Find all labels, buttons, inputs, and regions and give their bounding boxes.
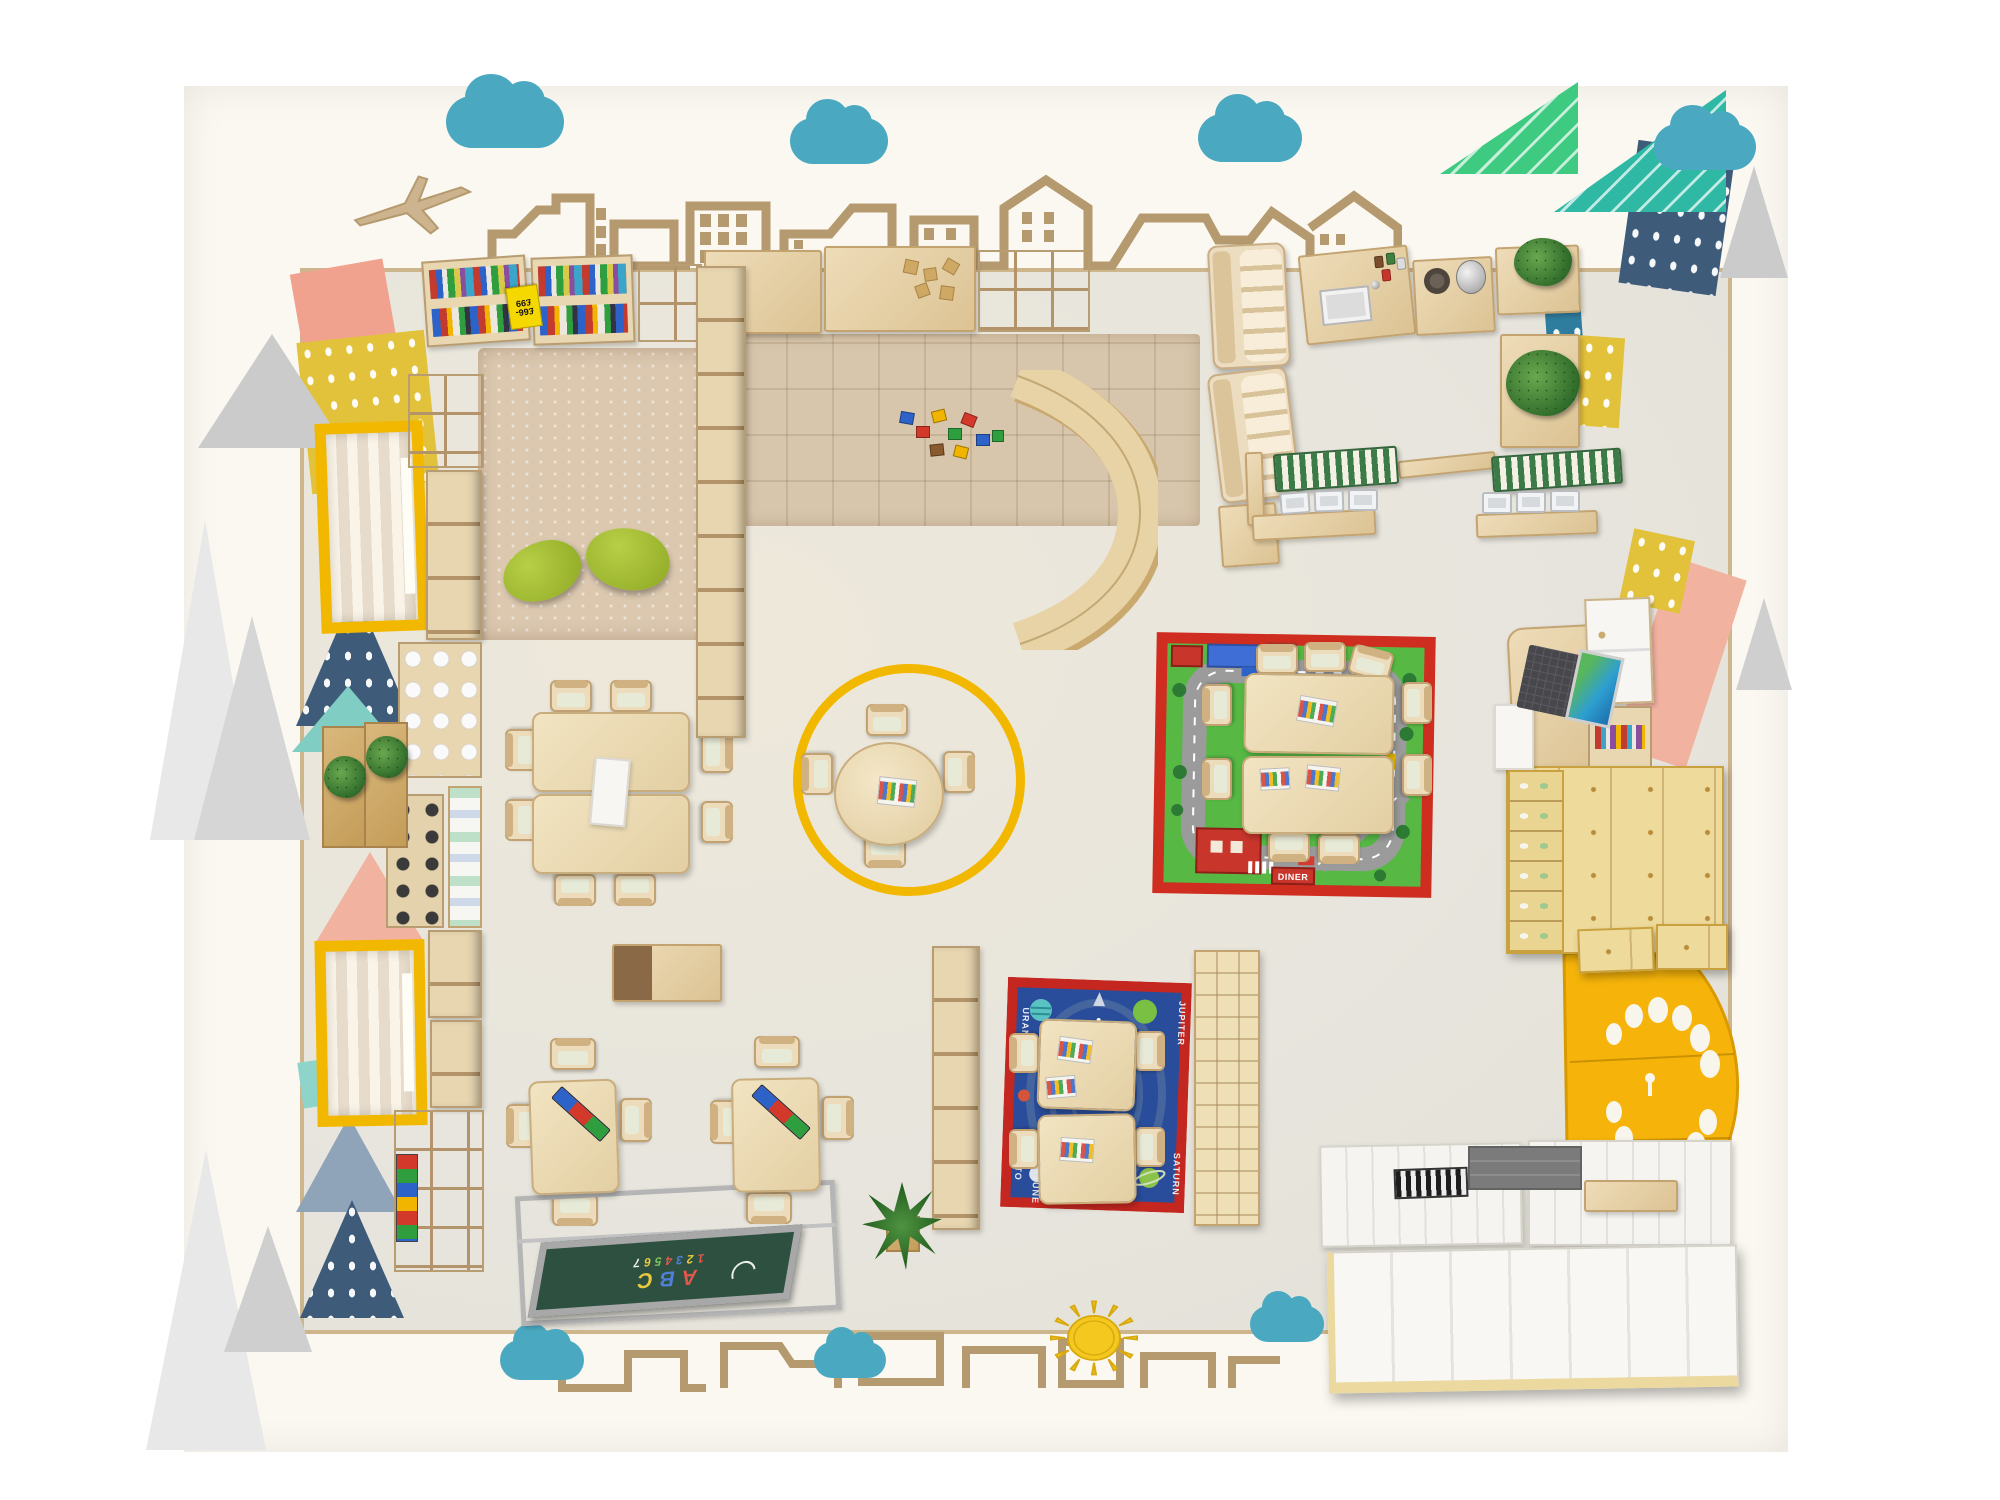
chair	[1402, 682, 1432, 724]
chair	[1402, 754, 1432, 796]
cloud-decal	[814, 1342, 886, 1378]
chalkboard-writing: ABC 1234567	[538, 1234, 791, 1308]
wall-cube-row	[426, 470, 482, 640]
chair	[614, 874, 656, 906]
chair	[1202, 758, 1232, 800]
kitchen-sink-props	[1308, 251, 1414, 343]
book-display	[530, 254, 635, 346]
chair	[1009, 1129, 1039, 1169]
cloud-decal	[1250, 1306, 1324, 1342]
chair	[1202, 684, 1232, 726]
wall-shelf-toys	[978, 250, 1090, 332]
stall-tray	[1516, 491, 1546, 513]
stall-tray	[1348, 489, 1378, 511]
chair	[554, 874, 596, 906]
wall-cube-row	[430, 1020, 482, 1108]
chalk-letter: A	[673, 1264, 699, 1289]
woven-mat	[1393, 1167, 1468, 1200]
jar	[1374, 255, 1384, 268]
counting-toy	[1056, 1036, 1093, 1064]
toy-block	[948, 428, 962, 440]
cloud-decal	[790, 118, 888, 164]
wall-cube-row	[428, 930, 482, 1018]
wood-block	[903, 259, 920, 276]
chair	[1009, 1033, 1039, 1073]
chair	[822, 1096, 854, 1140]
wall-toy-strip	[396, 1154, 418, 1242]
cloud-decal	[1654, 124, 1756, 170]
skyline-decal-bottom	[556, 1330, 1316, 1408]
toy-block	[899, 411, 915, 425]
divider-shelf	[1194, 950, 1260, 1226]
craft-console	[612, 944, 722, 1002]
chair	[1268, 832, 1310, 862]
chair	[1318, 834, 1360, 864]
counting-toy	[1059, 1137, 1095, 1163]
toy-block	[916, 426, 930, 438]
paper-sheet	[589, 757, 631, 828]
chair	[620, 1098, 652, 1142]
counting-toy	[1259, 767, 1290, 791]
sink-basin	[1319, 285, 1372, 326]
cloud-decal	[500, 1340, 584, 1380]
chair	[701, 801, 733, 843]
market-table	[1476, 510, 1599, 538]
pine-box	[1656, 924, 1728, 970]
cloud-decal	[446, 96, 564, 148]
counting-toy	[1305, 764, 1341, 791]
planet-label: JUPITER	[1176, 1001, 1188, 1046]
train-table	[731, 1077, 821, 1193]
mat-stack	[1468, 1146, 1582, 1190]
divider-shelf	[932, 946, 980, 1230]
pine-cubbies	[1508, 770, 1564, 952]
curved-bench	[982, 370, 1158, 650]
chair	[1256, 644, 1298, 674]
supply-shelf	[448, 786, 482, 928]
shrub	[324, 756, 366, 798]
plant	[1506, 350, 1580, 416]
planet-label: SATURN	[1171, 1153, 1182, 1196]
window	[314, 939, 427, 1127]
book-price-tag: £66-£99	[505, 284, 543, 330]
chair	[1304, 642, 1346, 672]
plant	[1514, 238, 1572, 286]
chair	[610, 680, 652, 712]
corner-cube-shelf	[638, 264, 702, 342]
book-price-tag-label: £66-£99	[508, 296, 540, 319]
wall-cube-box	[408, 374, 484, 468]
chair	[550, 680, 592, 712]
classroom-floor-plan: DINER URANUS JUPITER PLUTO NEPTUNE SATUR…	[0, 0, 2000, 1500]
chair	[1135, 1031, 1165, 1071]
toy-block	[992, 430, 1004, 442]
sun-decal	[1044, 1298, 1144, 1378]
paper-roll-shelf	[398, 642, 482, 778]
jar	[1381, 269, 1391, 282]
toy-block	[929, 443, 944, 456]
mat-tan	[1584, 1180, 1678, 1212]
chair	[754, 1036, 800, 1068]
shrub	[366, 736, 408, 778]
jar	[1396, 257, 1406, 270]
faucet	[1370, 280, 1380, 290]
chair	[1135, 1127, 1165, 1167]
stall-tray	[1482, 492, 1512, 514]
chair	[550, 1038, 596, 1070]
wood-block	[923, 267, 938, 282]
chair	[866, 704, 908, 736]
counting-toy	[877, 776, 918, 808]
stall-tray	[1279, 491, 1310, 515]
jar	[1386, 252, 1396, 265]
road-rug-diner-sign: DINER	[1278, 872, 1309, 883]
chair	[801, 753, 833, 795]
chalk-letter: B	[651, 1266, 677, 1291]
toy-block	[976, 434, 990, 446]
kitchen-plate	[1424, 268, 1450, 294]
chalk-letter: C	[628, 1267, 654, 1292]
pine-box	[1577, 927, 1654, 974]
stall-tray	[1314, 489, 1345, 512]
sofa	[1207, 242, 1291, 370]
counting-toy	[1045, 1075, 1077, 1100]
cloud-decal	[1198, 114, 1302, 162]
nap-storage-front	[1327, 1244, 1739, 1393]
chair	[943, 751, 975, 793]
room-divider-shelf	[696, 266, 746, 738]
kitchen-kettle	[1456, 260, 1486, 294]
wood-block	[939, 285, 955, 301]
stall-tray	[1550, 490, 1580, 512]
